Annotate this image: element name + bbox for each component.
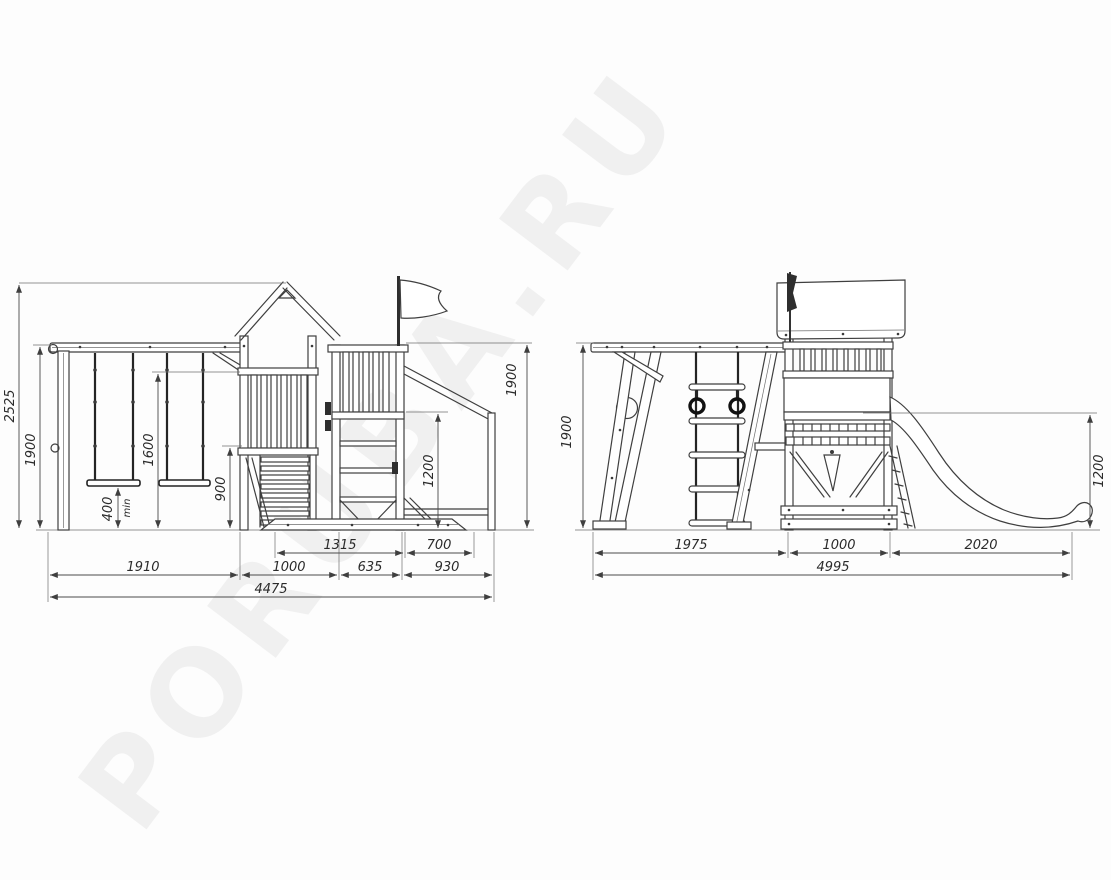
swing-seat — [87, 480, 140, 486]
blueprint-canvas: PORUBA.RU — [0, 0, 1111, 880]
tower-side — [777, 272, 905, 530]
side-view: 1900 1200 1975 1000 2020 4995 — [560, 272, 1107, 580]
dim-seat-clearance: 400 — [101, 497, 116, 522]
dim-frame-height: 1900 — [560, 415, 575, 448]
dim-total-width-side: 4995 — [816, 560, 849, 575]
dim-seat-clearance-note: min — [122, 499, 133, 518]
playground-blueprint: PORUBA.RU — [0, 0, 1111, 880]
swing-1 — [87, 353, 140, 486]
dim-930: 930 — [435, 560, 460, 575]
hinge-bracket — [392, 462, 398, 474]
dim-1000s: 1000 — [822, 538, 855, 553]
swing-seat — [159, 480, 210, 486]
dim-1910: 1910 — [126, 560, 159, 575]
base-front — [261, 519, 466, 530]
dim-1975: 1975 — [674, 538, 707, 553]
dim-635: 635 — [358, 560, 383, 575]
slide-side — [889, 397, 1092, 528]
dim-guardrail-height: 1600 — [142, 433, 157, 466]
dim-platform-height: 900 — [214, 477, 229, 502]
flag-pole — [397, 276, 400, 346]
dim-1315: 1315 — [323, 538, 356, 553]
dim-slide-start-height: 1200 — [1092, 454, 1107, 487]
dim-2020: 2020 — [964, 538, 997, 553]
hinge-bracket — [325, 420, 331, 431]
dim-beam-height: 1900 — [24, 433, 39, 466]
hanging-brace — [824, 455, 840, 491]
dim-slide-platform-height: 1200 — [422, 454, 437, 487]
hinge-bracket — [325, 402, 331, 415]
dim-tower-top-height: 1900 — [505, 363, 520, 396]
dim-total-height: 2525 — [3, 389, 18, 422]
dim-700: 700 — [427, 538, 452, 553]
dim-1000f: 1000 — [272, 560, 305, 575]
dim-total-width-front: 4475 — [254, 582, 287, 597]
swing-2 — [159, 353, 210, 486]
stair-side — [727, 352, 786, 529]
side-panel — [784, 378, 890, 412]
